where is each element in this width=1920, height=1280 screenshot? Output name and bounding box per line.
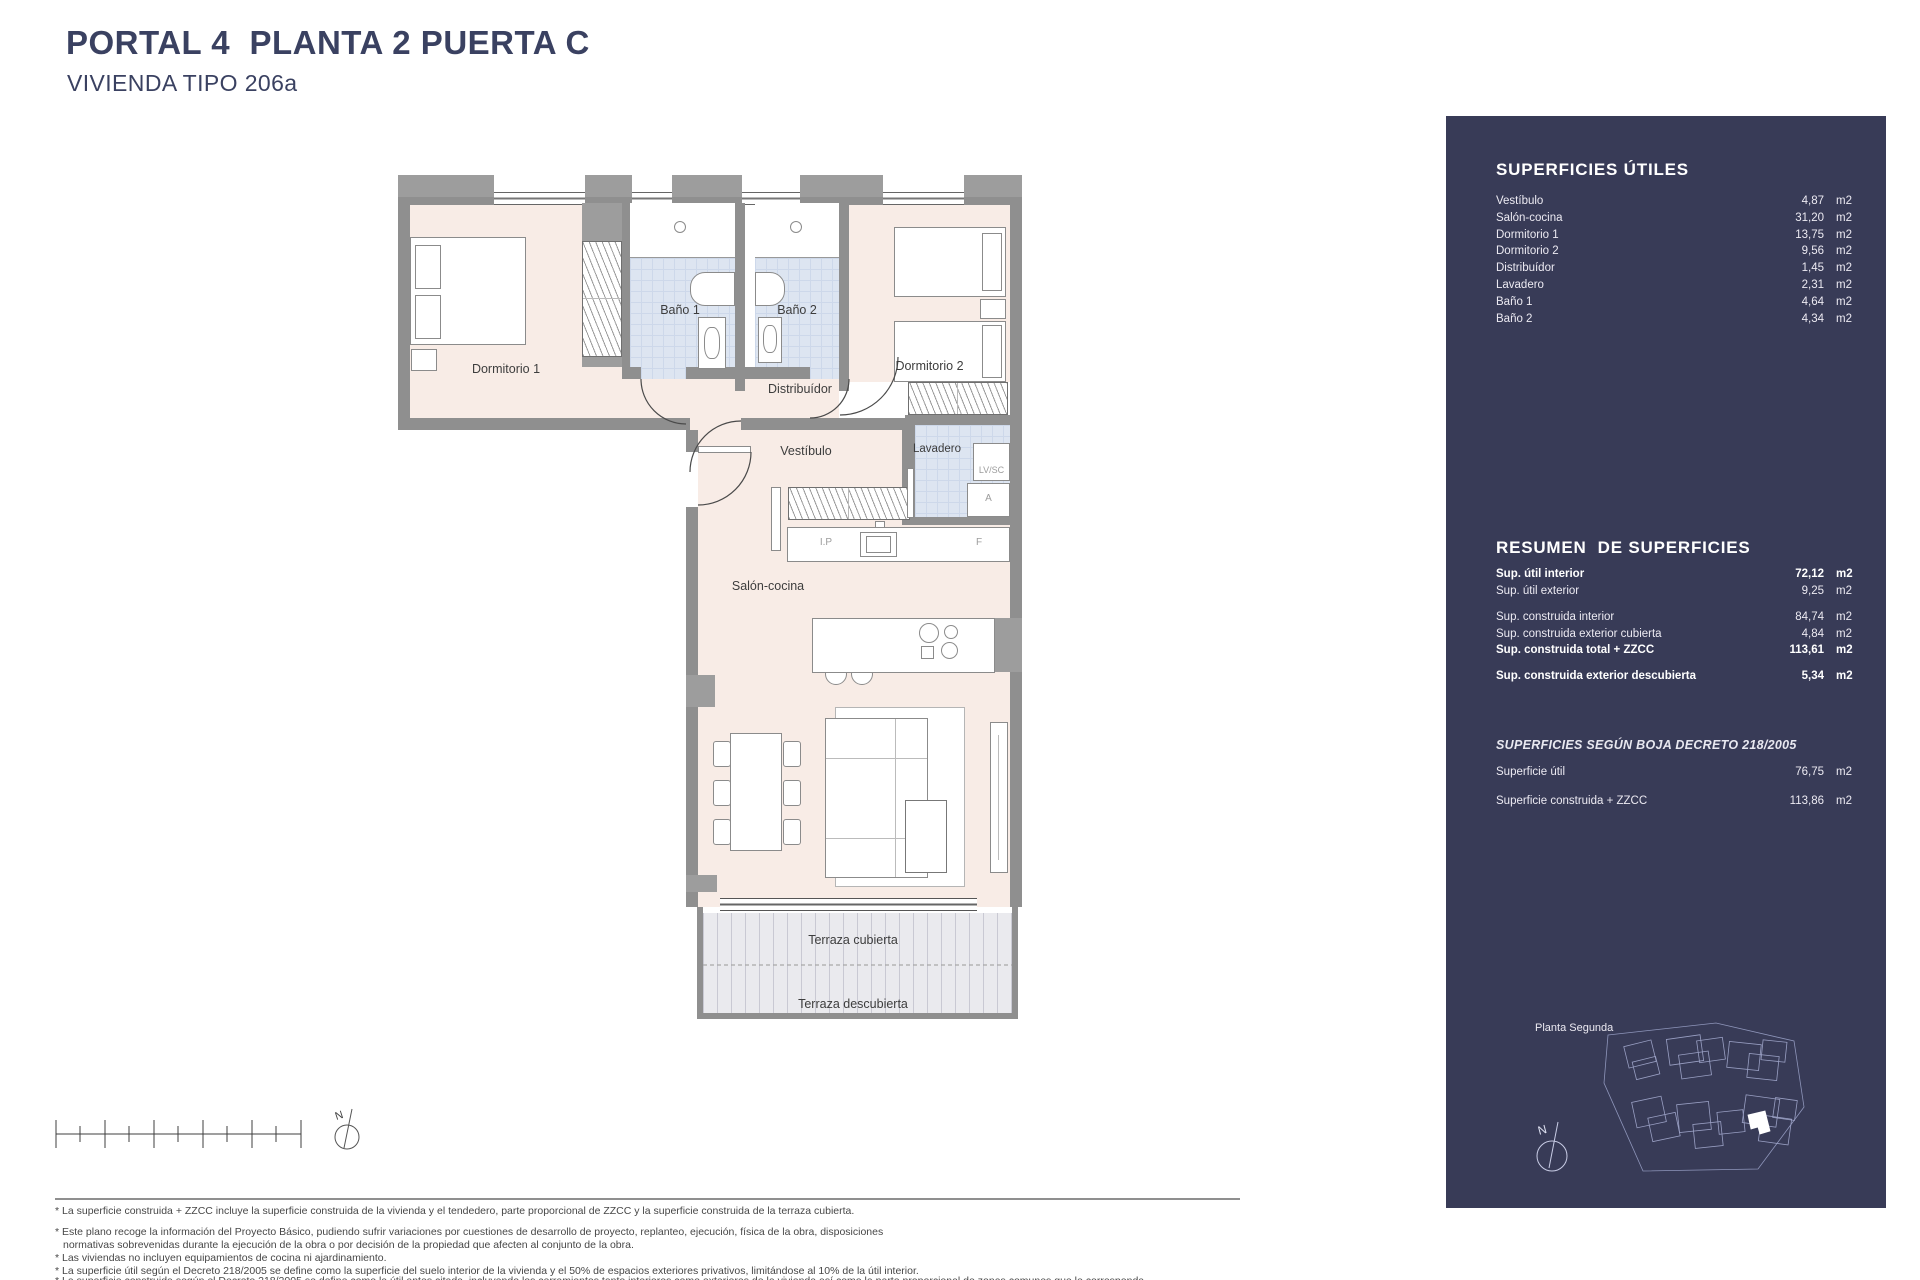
surface-row: Sup. construida interior84,74m2 xyxy=(1496,611,1858,623)
surface-row: Superficie construida + ZZCC113,86m2 xyxy=(1496,795,1858,807)
surface-row: Distribuídor1,45m2 xyxy=(1496,262,1858,274)
section-superficies-utiles: SUPERFICIES ÚTILES Vestíbulo4,87m2 Salón… xyxy=(1496,160,1858,325)
room-label-dormitorio2: Dormitorio 2 xyxy=(857,359,1002,373)
surface-row: Sup. útil interior72,12m2 xyxy=(1496,568,1858,580)
room-label-bano1: Baño 1 xyxy=(620,303,740,317)
page-title: PORTAL 4 PLANTA 2 PUERTA C xyxy=(66,24,590,62)
footer-note: * La superficie construida según el Decr… xyxy=(55,1275,1147,1280)
surface-row: Lavadero2,31m2 xyxy=(1496,279,1858,291)
surface-row: Sup. construida total + ZZCC113,61m2 xyxy=(1496,644,1858,656)
surface-row: Dormitorio 29,56m2 xyxy=(1496,245,1858,257)
surface-row: Vestíbulo4,87m2 xyxy=(1496,195,1858,207)
surface-row: Sup. útil exterior9,25m2 xyxy=(1496,585,1858,597)
room-label-lavadero: Lavadero xyxy=(901,443,973,455)
footer-rule xyxy=(55,1198,1240,1200)
room-label-bano2: Baño 2 xyxy=(737,303,857,317)
floor-plan: LV/SC A I.P F xyxy=(398,175,1030,1041)
surface-row: Sup. construida exterior descubierta5,34… xyxy=(1496,670,1858,682)
section-heading: SUPERFICIES ÚTILES xyxy=(1496,160,1858,180)
footer-note: * Las viviendas no incluyen equipamiento… xyxy=(55,1252,387,1264)
section-boja: SUPERFICIES SEGÚN BOJA DECRETO 218/2005 … xyxy=(1496,738,1858,807)
section-resumen: RESUMEN DE SUPERFICIES Sup. útil interio… xyxy=(1496,538,1858,682)
north-arrow-icon: N xyxy=(325,1105,375,1165)
room-label-salon: Salón-cocina xyxy=(688,579,848,593)
site-plan xyxy=(1598,1019,1813,1181)
plan-sheet: PORTAL 4 PLANTA 2 PUERTA C VIVIENDA TIPO… xyxy=(0,0,1920,1280)
room-label-dormitorio1: Dormitorio 1 xyxy=(446,362,566,376)
north-letter: N xyxy=(1536,1122,1548,1138)
north-arrow-icon: N xyxy=(1518,1116,1586,1188)
surface-row: Sup. construida exterior cubierta4,84m2 xyxy=(1496,628,1858,640)
north-letter: N xyxy=(334,1109,345,1123)
footer-note: * La superficie construida + ZZCC incluy… xyxy=(55,1205,854,1217)
page-subtitle: VIVIENDA TIPO 206a xyxy=(67,70,298,97)
surface-row: Dormitorio 113,75m2 xyxy=(1496,229,1858,241)
footer-note: normativas sobrevenidas durante la ejecu… xyxy=(63,1239,634,1251)
surface-row: Baño 14,64m2 xyxy=(1496,296,1858,308)
section-heading: SUPERFICIES SEGÚN BOJA DECRETO 218/2005 xyxy=(1496,738,1858,752)
surface-row: Salón-cocina31,20m2 xyxy=(1496,212,1858,224)
room-label-terraza-cubierta: Terraza cubierta xyxy=(728,933,978,947)
room-label-distribuidor: Distribuídor xyxy=(720,382,880,396)
room-label-terraza-descubierta: Terraza descubierta xyxy=(728,997,978,1011)
section-heading: RESUMEN DE SUPERFICIES xyxy=(1496,538,1858,558)
surfaces-panel: SUPERFICIES ÚTILES Vestíbulo4,87m2 Salón… xyxy=(1446,116,1886,1208)
highlighted-unit xyxy=(1748,1111,1770,1134)
room-label-vestibulo: Vestíbulo xyxy=(726,444,886,458)
surface-row: Superficie útil76,75m2 xyxy=(1496,766,1858,778)
footer-note: * Este plano recoge la información del P… xyxy=(55,1226,883,1238)
surface-row: Baño 24,34m2 xyxy=(1496,313,1858,325)
scale-bar xyxy=(55,1112,305,1156)
